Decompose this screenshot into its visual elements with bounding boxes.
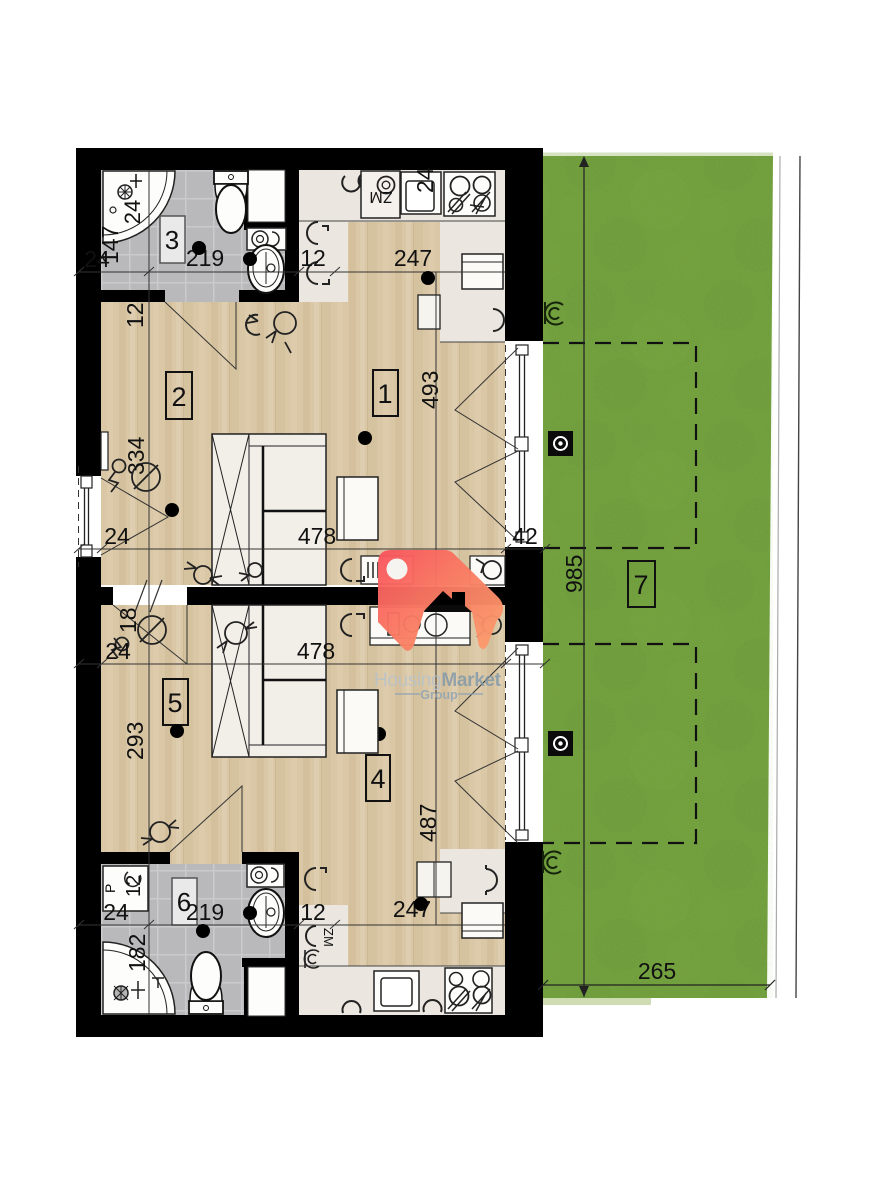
svg-text:2: 2 [171, 382, 186, 412]
svg-text:985: 985 [561, 555, 587, 593]
svg-text:247: 247 [394, 245, 432, 271]
svg-text:4: 4 [370, 764, 385, 794]
svg-text:42: 42 [512, 523, 538, 549]
svg-text:3: 3 [165, 225, 179, 255]
svg-text:24: 24 [103, 899, 129, 925]
svg-text:5: 5 [167, 688, 182, 718]
svg-text:182: 182 [124, 934, 150, 972]
svg-text:24: 24 [120, 200, 145, 224]
svg-text:493: 493 [417, 371, 443, 409]
svg-text:478: 478 [298, 523, 336, 549]
svg-text:ZM: ZM [369, 188, 392, 205]
svg-text:Group: Group [420, 688, 458, 702]
svg-text:24: 24 [105, 638, 131, 664]
svg-text:12: 12 [300, 245, 326, 271]
svg-text:334: 334 [123, 436, 149, 475]
svg-text:487: 487 [415, 804, 441, 842]
svg-text:293: 293 [122, 722, 148, 760]
svg-text:7: 7 [633, 570, 648, 600]
svg-text:24: 24 [412, 167, 438, 193]
svg-text:24: 24 [104, 523, 130, 549]
svg-text:ZM: ZM [321, 928, 336, 947]
svg-text:219: 219 [186, 899, 224, 925]
svg-text:265: 265 [638, 958, 676, 984]
svg-text:1: 1 [377, 379, 392, 409]
svg-text:478: 478 [297, 638, 335, 664]
svg-text:18: 18 [115, 607, 141, 633]
svg-text:12: 12 [300, 899, 326, 925]
svg-text:P: P [102, 884, 118, 893]
svg-text:12: 12 [122, 302, 148, 328]
svg-text:147: 147 [97, 226, 123, 264]
